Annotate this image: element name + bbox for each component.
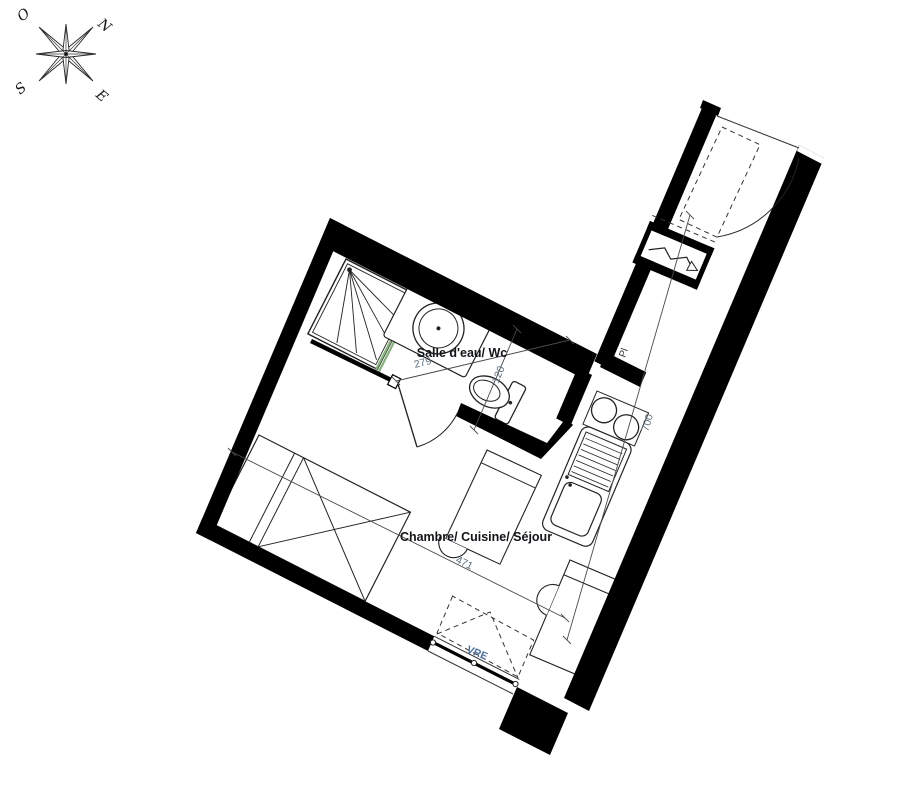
window-vre — [428, 596, 534, 694]
floor-plan: O N S E — [0, 0, 905, 800]
main-room-label: Chambre/ Cuisine/ Séjour — [400, 530, 552, 544]
bathroom-door — [398, 384, 458, 447]
walls — [196, 100, 824, 755]
closet-label: Pl — [617, 347, 630, 359]
compass-letter-e: E — [92, 86, 111, 105]
compass-letter-o: O — [14, 5, 33, 25]
bathroom-label: Salle d'eau/ Wc — [417, 346, 508, 360]
dim-wc-width: 120 — [490, 364, 508, 385]
dim-room-width: 471 — [454, 554, 475, 573]
compass-rose: O N S E — [12, 5, 114, 106]
compass-letter-n: N — [94, 15, 115, 36]
floor-plan-canvas: O N S E — [0, 0, 905, 800]
compass-letter-s: S — [12, 80, 30, 98]
wall-corner-block — [499, 687, 568, 755]
table — [434, 447, 542, 577]
